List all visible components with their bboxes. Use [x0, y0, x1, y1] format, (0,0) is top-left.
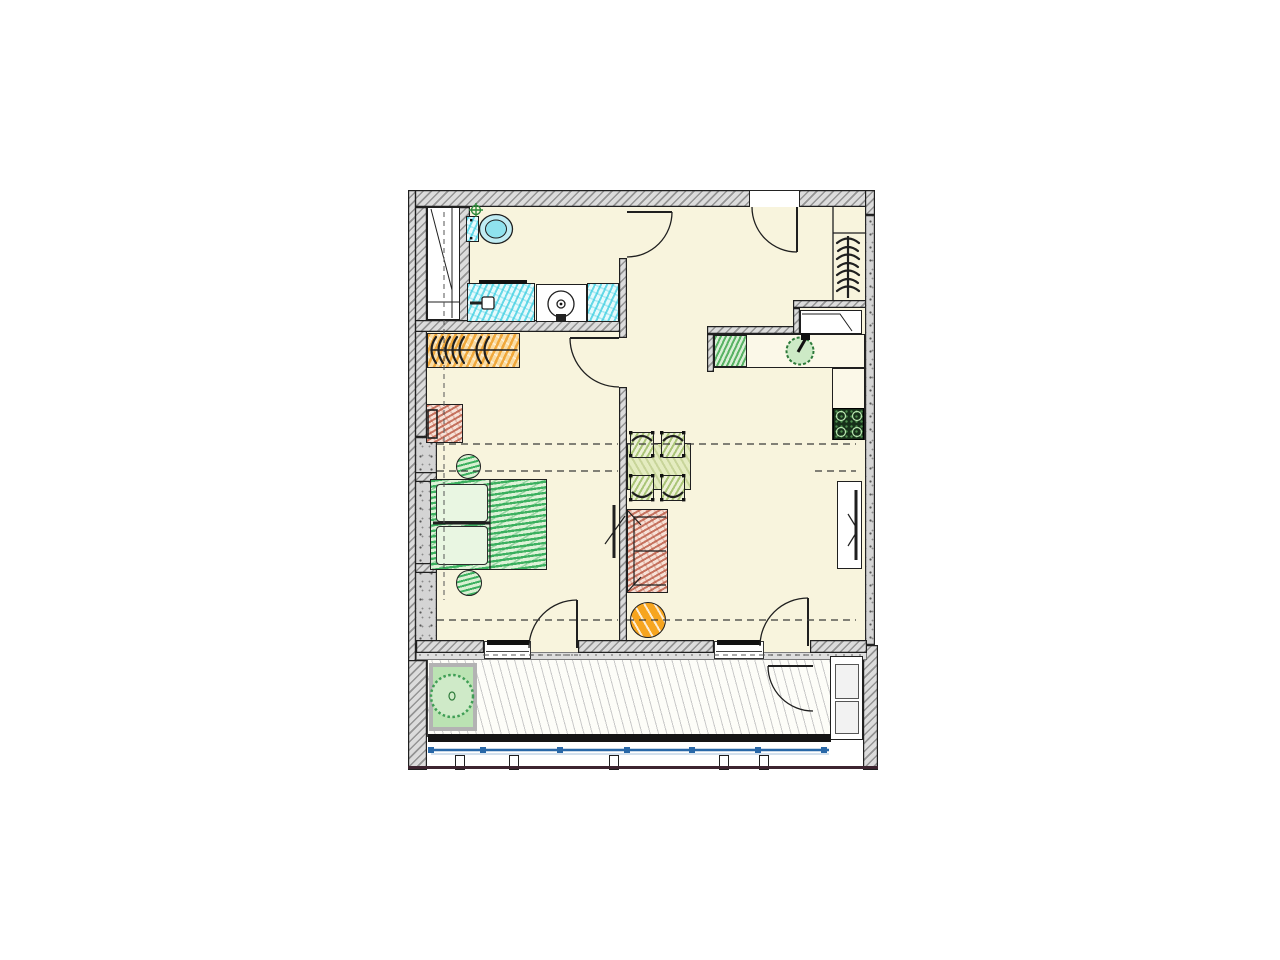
bedroom-window-glazing [486, 651, 529, 652]
bathroom-vanity [467, 283, 535, 322]
storage-shelf-1 [835, 664, 859, 699]
shower-tray [587, 283, 619, 322]
balcony-edge-band [428, 734, 831, 742]
niche-wall [793, 300, 867, 308]
bottom-wall-seg-2 [578, 640, 714, 653]
balcony-left-wall [408, 660, 427, 770]
bed-pillow-1 [436, 484, 488, 522]
tv-wall-niche [837, 481, 862, 569]
bed-pillow-2 [436, 526, 488, 565]
floor-plan [0, 0, 1280, 960]
living-room-window-glazing [716, 651, 762, 652]
round-coffee-table [630, 602, 666, 638]
cooktop [833, 408, 864, 440]
duct-shaft [427, 207, 460, 320]
washing-machine [536, 284, 587, 322]
bedroom-window-sill [487, 640, 529, 645]
desk [426, 404, 463, 443]
bottom-wall-seg-1 [416, 640, 484, 653]
section-base-line [408, 766, 878, 769]
sofa [627, 509, 668, 593]
kitchen-worktop-board [714, 335, 747, 367]
niche-left-stub [793, 308, 800, 334]
right-bottom-wall [863, 645, 878, 770]
balcony-rug [429, 663, 477, 731]
dining-chair-3 [630, 475, 654, 501]
divider-wall-lower [619, 387, 627, 652]
bottom-wall-seg-3 [810, 640, 867, 653]
dining-chair-4 [661, 475, 685, 501]
pouf-2 [456, 570, 482, 596]
wardrobe [427, 333, 520, 368]
dining-chair-1 [630, 432, 654, 458]
shoe-shelf [800, 310, 862, 334]
dining-chair-2 [661, 432, 685, 458]
toilet-tank [466, 216, 479, 242]
entrance-niche [749, 190, 800, 207]
living-room-window-sill [717, 640, 761, 645]
kitchen-top-wall [707, 326, 800, 334]
vanity-counter-edge [479, 280, 527, 284]
pouf-1 [456, 454, 481, 479]
balcony-railing [428, 747, 829, 754]
right-wall-top-corner [865, 190, 875, 215]
storage-shelf-2 [835, 701, 859, 734]
right-exterior-wall [865, 215, 875, 645]
balcony-deck-floor [427, 658, 832, 737]
divider-wall-upper [619, 258, 627, 338]
